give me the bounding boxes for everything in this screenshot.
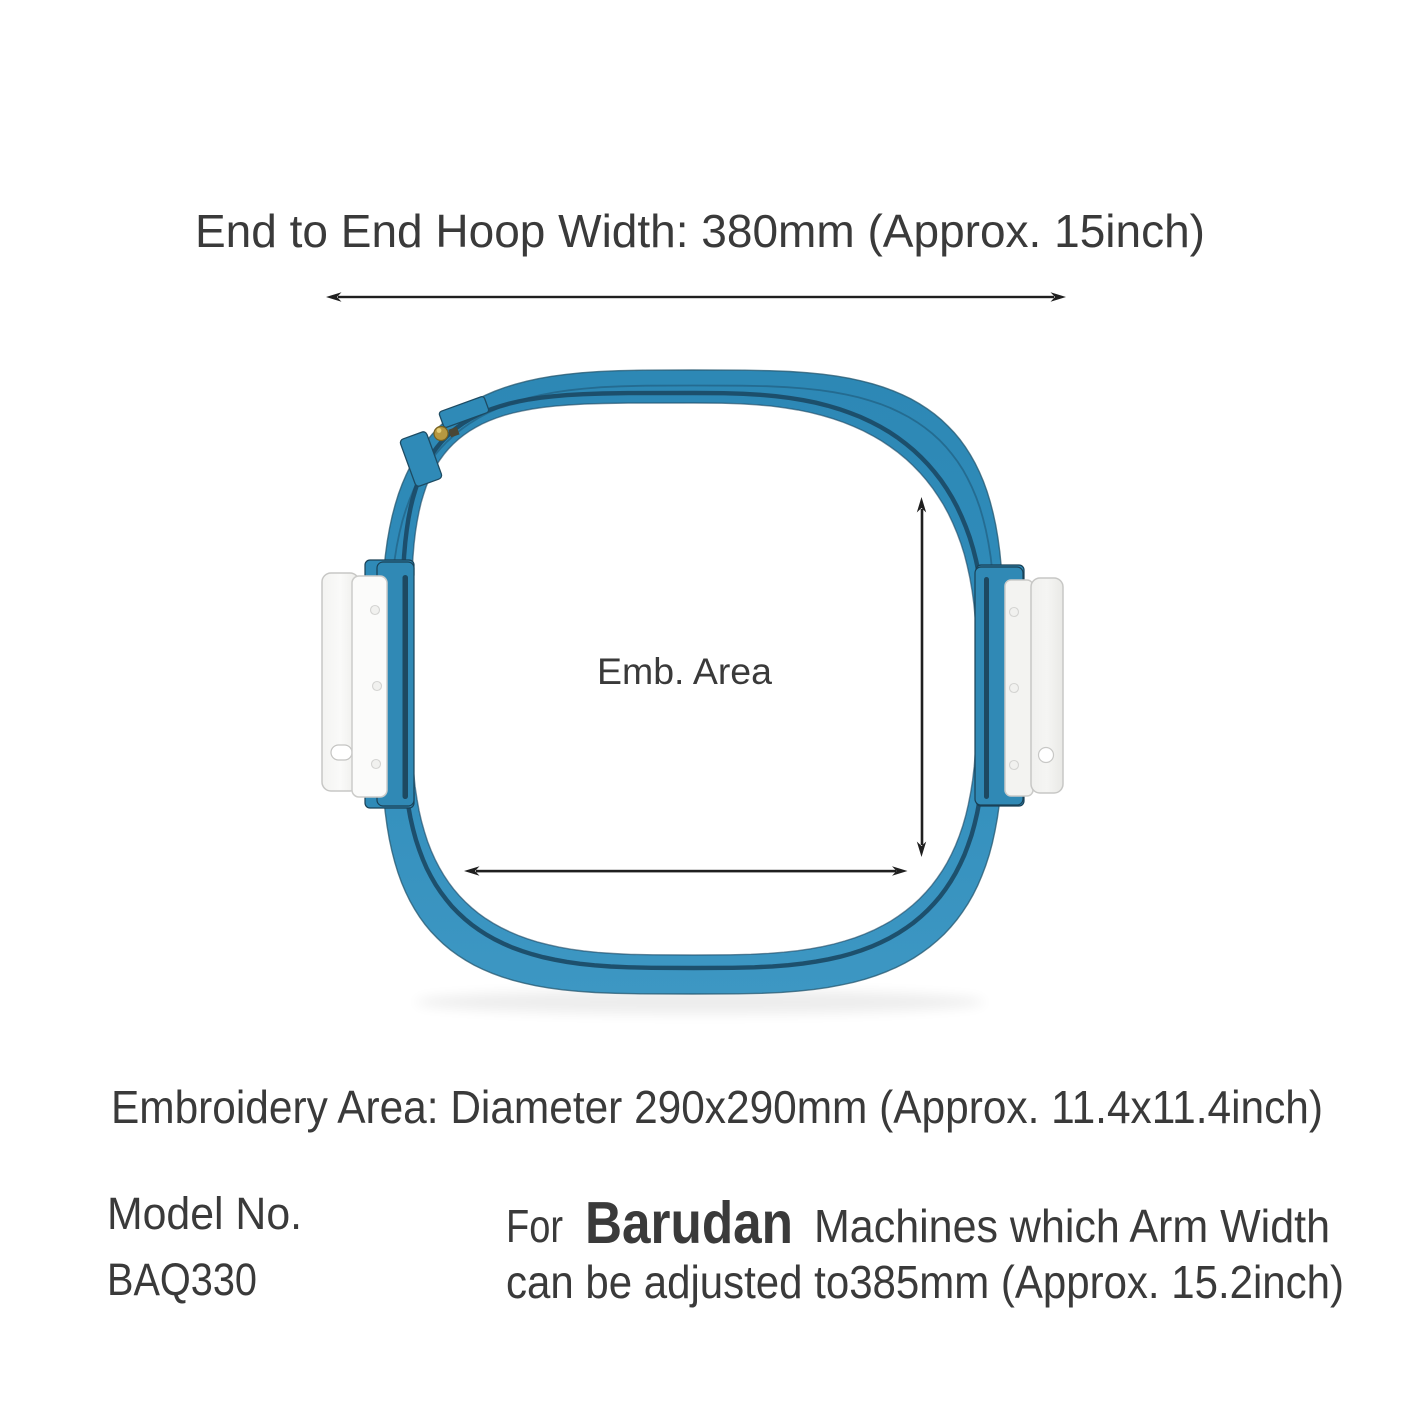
svg-text:Machines which Arm Width: Machines which Arm Width	[814, 1200, 1330, 1252]
svg-text:For: For	[506, 1200, 563, 1252]
svg-text:Emb. Area: Emb. Area	[597, 651, 772, 692]
svg-text:can be adjusted to385mm (Appro: can be adjusted to385mm (Approx. 15.2inc…	[506, 1256, 1344, 1308]
svg-text:Embroidery Area: Diameter 290x: Embroidery Area: Diameter 290x290mm (App…	[111, 1081, 1323, 1133]
svg-text:Barudan: Barudan	[585, 1190, 793, 1256]
svg-text:End to End Hoop Width: 380mm (: End to End Hoop Width: 380mm (Approx. 15…	[195, 205, 1205, 257]
svg-text:BAQ330: BAQ330	[107, 1254, 257, 1305]
svg-text:Model No.: Model No.	[107, 1188, 302, 1239]
